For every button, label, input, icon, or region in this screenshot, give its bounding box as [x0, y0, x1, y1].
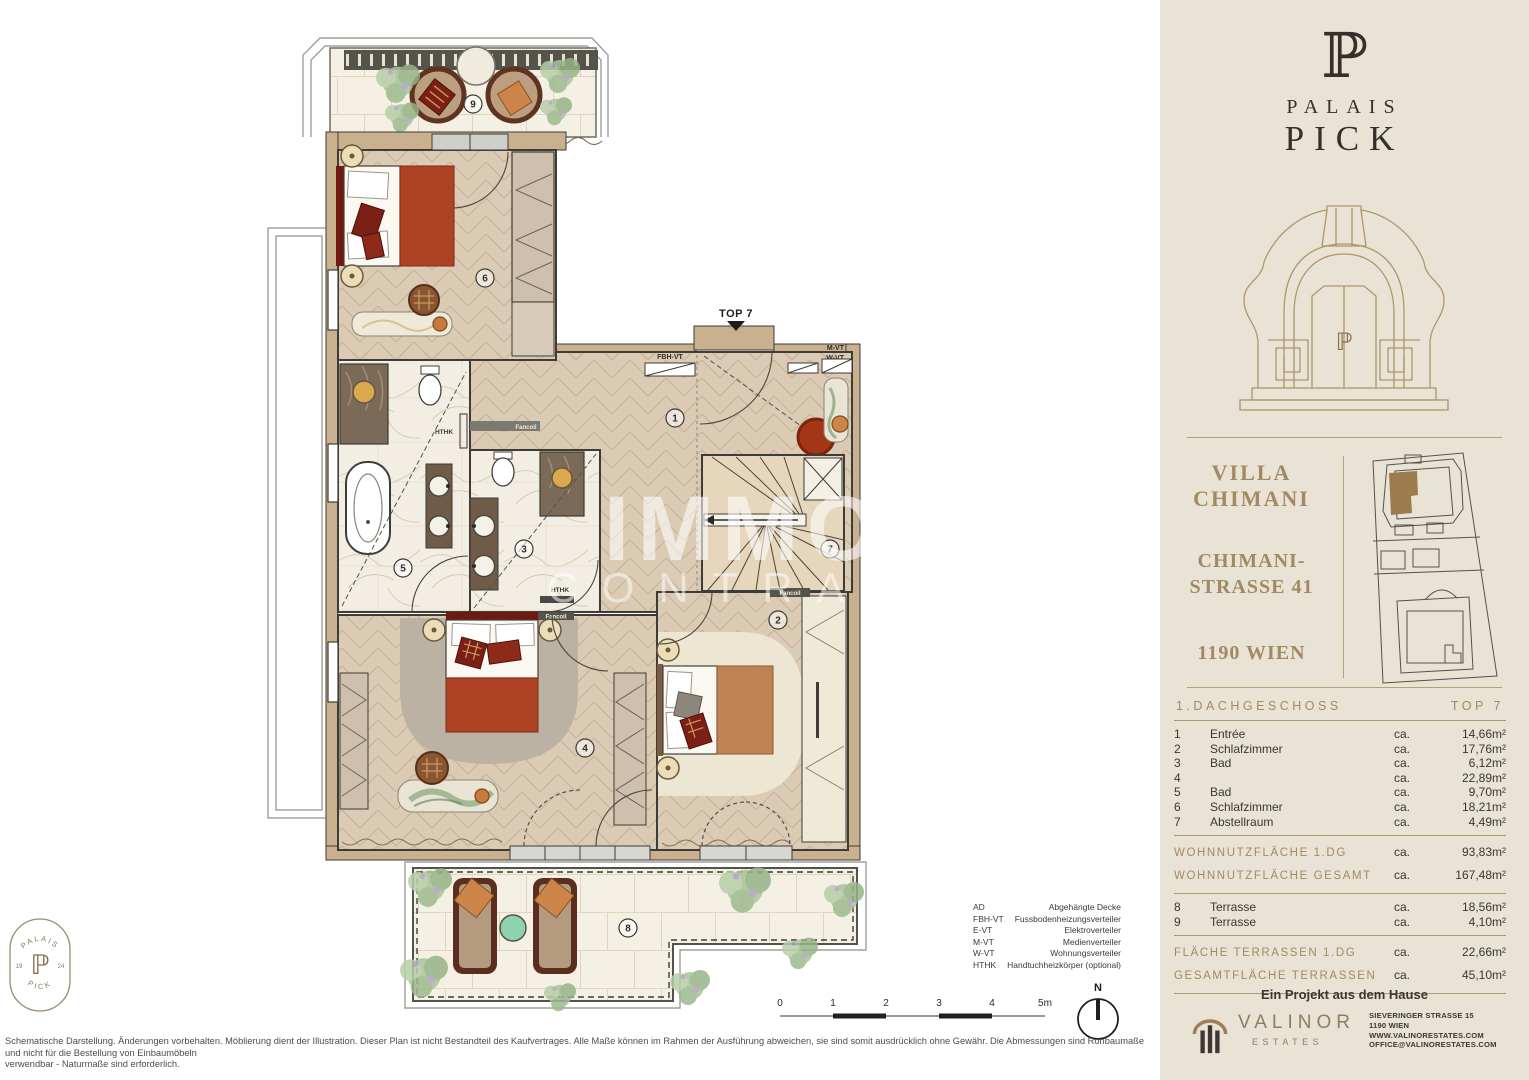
seal-bottom-text: PICK — [26, 978, 54, 991]
legend-row: M-VTMedienverteiler — [973, 937, 1121, 949]
legend-row: HTHKHandtuchheizkörper (optional) — [973, 960, 1121, 972]
svg-text:PALAIS: PALAIS — [19, 934, 61, 951]
toilet — [419, 366, 441, 405]
svg-text:5m: 5m — [1038, 998, 1052, 1009]
room-marker: 5 — [394, 559, 412, 577]
table-row: 4ca.22,89m² — [1174, 771, 1506, 786]
valinor-name: VALINOR ESTATES — [1238, 1012, 1355, 1047]
room-marker: 4 — [576, 739, 594, 757]
console — [824, 378, 848, 442]
floorplan-page: HTHK FBH-VT — [0, 0, 1529, 1080]
svg-text:7: 7 — [827, 545, 833, 556]
legend-row: W-VTWohnungsverteiler — [973, 948, 1121, 960]
svg-text:Fancoil: Fancoil — [779, 591, 800, 597]
table-row: 7Abstellraumca.4,49m² — [1174, 815, 1506, 830]
room-marker: 6 — [476, 269, 494, 287]
legend-row: FBH-VTFussbodenheizungsverteiler — [973, 914, 1121, 926]
project-city: 1190 WIEN — [1160, 642, 1343, 665]
staircase-7 — [702, 455, 844, 591]
svg-text:5: 5 — [400, 564, 406, 575]
valinor-contact: SIEVERINGER STRASSE 15 1190 WIEN WWW.VAL… — [1369, 1011, 1497, 1050]
fancoil-box: Fancoil — [538, 612, 574, 621]
fancoil-box: Fancoil — [770, 588, 810, 597]
palais-pick-seal: PALAIS PICK ℙ 19 24 — [8, 916, 72, 1014]
svg-text:2: 2 — [775, 616, 781, 627]
svg-text:Fancoil: Fancoil — [515, 425, 536, 431]
divider — [1174, 935, 1506, 936]
brand-logo: ℙ PALAIS PICK — [1160, 24, 1529, 159]
highlighted-unit — [1389, 471, 1418, 515]
seal-year-left: 19 — [16, 964, 23, 970]
svg-text:M-VT: M-VT — [827, 345, 845, 352]
bed — [336, 166, 454, 266]
shower — [340, 364, 388, 450]
terrace-8 — [400, 867, 864, 1011]
svg-text:2: 2 — [883, 998, 889, 1009]
terrace-table — [457, 47, 495, 85]
svg-text:N: N — [1094, 982, 1102, 994]
terrace-table — [500, 915, 526, 941]
hthk-label: HTHK — [551, 587, 569, 594]
table-header: 1.DACHGESCHOSS TOP 7 — [1174, 697, 1506, 721]
divider — [1187, 437, 1502, 438]
bedroom-6 — [336, 134, 556, 360]
summary-row: GESAMTFLÄCHE TERRASSENca.45,10m² — [1174, 965, 1506, 988]
seal-monogram: ℙ — [31, 950, 50, 980]
wardrobe — [802, 596, 846, 842]
sun-lounger — [453, 878, 497, 974]
bed — [446, 612, 538, 732]
wardrobe — [614, 673, 646, 825]
disclaimer: Schematische Darstellung. Änderungen vor… — [5, 1036, 1157, 1071]
floor-label: 1.DACHGESCHOSS — [1176, 699, 1342, 713]
bedroom-2: Fancoil — [657, 588, 848, 860]
summary-row: FLÄCHE TERRASSEN 1.DGca.22,66m² — [1174, 942, 1506, 965]
svg-text:FBH-VT: FBH-VT — [657, 354, 683, 361]
svg-text:TOP 7: TOP 7 — [719, 308, 753, 320]
floor-plan: HTHK FBH-VT — [0, 0, 1160, 1080]
brand-word-palais: PALAIS — [1160, 96, 1529, 119]
svg-text:0: 0 — [777, 998, 783, 1009]
fancoil-box: Fancoil — [470, 421, 540, 431]
legend-row: E-VTElektroverteiler — [973, 925, 1121, 937]
table-row: 9Terrasseca.4,10m² — [1174, 915, 1506, 930]
table-row: 5Badca.9,70m² — [1174, 785, 1506, 800]
svg-text:Fancoil: Fancoil — [545, 615, 566, 621]
bed — [657, 664, 773, 756]
room-marker: 7 — [821, 540, 839, 558]
double-vanity — [426, 464, 452, 548]
unit-label: TOP 7 — [1451, 699, 1504, 713]
table-row: 1Entréeca.14,66m² — [1174, 727, 1506, 742]
svg-text:1: 1 — [830, 998, 836, 1009]
legend-row: ADAbgehängte Decke — [973, 902, 1121, 914]
seal-year-right: 24 — [58, 964, 65, 970]
seal-top-text: PALAIS — [19, 934, 61, 951]
valinor-block: VALINOR ESTATES SIEVERINGER STRASSE 15 1… — [1190, 1008, 1497, 1058]
lounge-chair — [488, 69, 540, 121]
room-marker: 8 — [619, 919, 637, 937]
legend: ADAbgehängte Decke FBH-VTFussbodenheizun… — [973, 902, 1121, 972]
toilet — [492, 452, 514, 486]
area-table: 1.DACHGESCHOSS TOP 7 1Entréeca.14,66m² 2… — [1174, 697, 1506, 1000]
brand-word-pick: PICK — [1160, 119, 1529, 159]
sidebar: ℙ PALAIS PICK ℙ VILLA — [1160, 0, 1529, 1080]
svg-text:PICK: PICK — [26, 978, 54, 991]
divider — [1174, 835, 1506, 836]
bathroom-3: HTHK — [470, 450, 600, 612]
svg-text:4: 4 — [582, 744, 588, 755]
divider — [1343, 456, 1344, 678]
svg-text:3: 3 — [521, 545, 527, 556]
table-row: 6Schlafzimmerca.18,21m² — [1174, 800, 1506, 815]
svg-text:1: 1 — [672, 414, 678, 425]
bedroom-4: Fancoil — [338, 612, 660, 860]
svg-text:9: 9 — [470, 100, 476, 111]
double-vanity — [470, 498, 498, 590]
north-arrow: N — [1078, 982, 1118, 1039]
room-marker: 1 — [666, 409, 684, 427]
site-plan — [1365, 451, 1507, 684]
room-marker: 9 — [464, 95, 482, 113]
table-row: 2Schlafzimmerca.17,76m² — [1174, 742, 1506, 757]
svg-text:4: 4 — [989, 998, 995, 1009]
brand-monogram-icon: ℙ — [1160, 24, 1529, 88]
scale-bar: 0 1 2 3 4 5m — [777, 998, 1052, 1016]
bathtub — [346, 462, 390, 554]
divider — [1174, 893, 1506, 894]
portal-illustration-icon: ℙ — [1224, 192, 1464, 422]
divider — [1187, 687, 1502, 688]
hthk-label: HTHK — [435, 429, 453, 436]
portal-monogram: ℙ — [1336, 329, 1353, 356]
room-marker: 2 — [769, 611, 787, 629]
project-name: VILLA CHIMANI — [1160, 460, 1343, 512]
svg-text:6: 6 — [482, 274, 488, 285]
sun-lounger — [533, 878, 577, 974]
table-row: 8Terrasseca.18,56m² — [1174, 900, 1506, 915]
shower — [540, 452, 584, 516]
project-street: CHIMANI- STRASSE 41 — [1160, 548, 1343, 600]
svg-text:8: 8 — [625, 924, 631, 935]
svg-text:3: 3 — [936, 998, 942, 1009]
valinor-logo-icon — [1190, 1010, 1230, 1058]
summary-row: WOHNNUTZFLÄCHE GESAMTca.167,48m² — [1174, 865, 1506, 888]
summary-row: WOHNNUTZFLÄCHE 1.DGca.93,83m² — [1174, 842, 1506, 865]
project-info: VILLA CHIMANI CHIMANI- STRASSE 41 1190 W… — [1160, 450, 1529, 686]
room-marker: 3 — [515, 540, 533, 558]
table-row: 3Badca.6,12m² — [1174, 756, 1506, 771]
project-line: Ein Projekt aus dem Hause — [1160, 987, 1529, 1002]
terrace-9 — [330, 47, 602, 145]
